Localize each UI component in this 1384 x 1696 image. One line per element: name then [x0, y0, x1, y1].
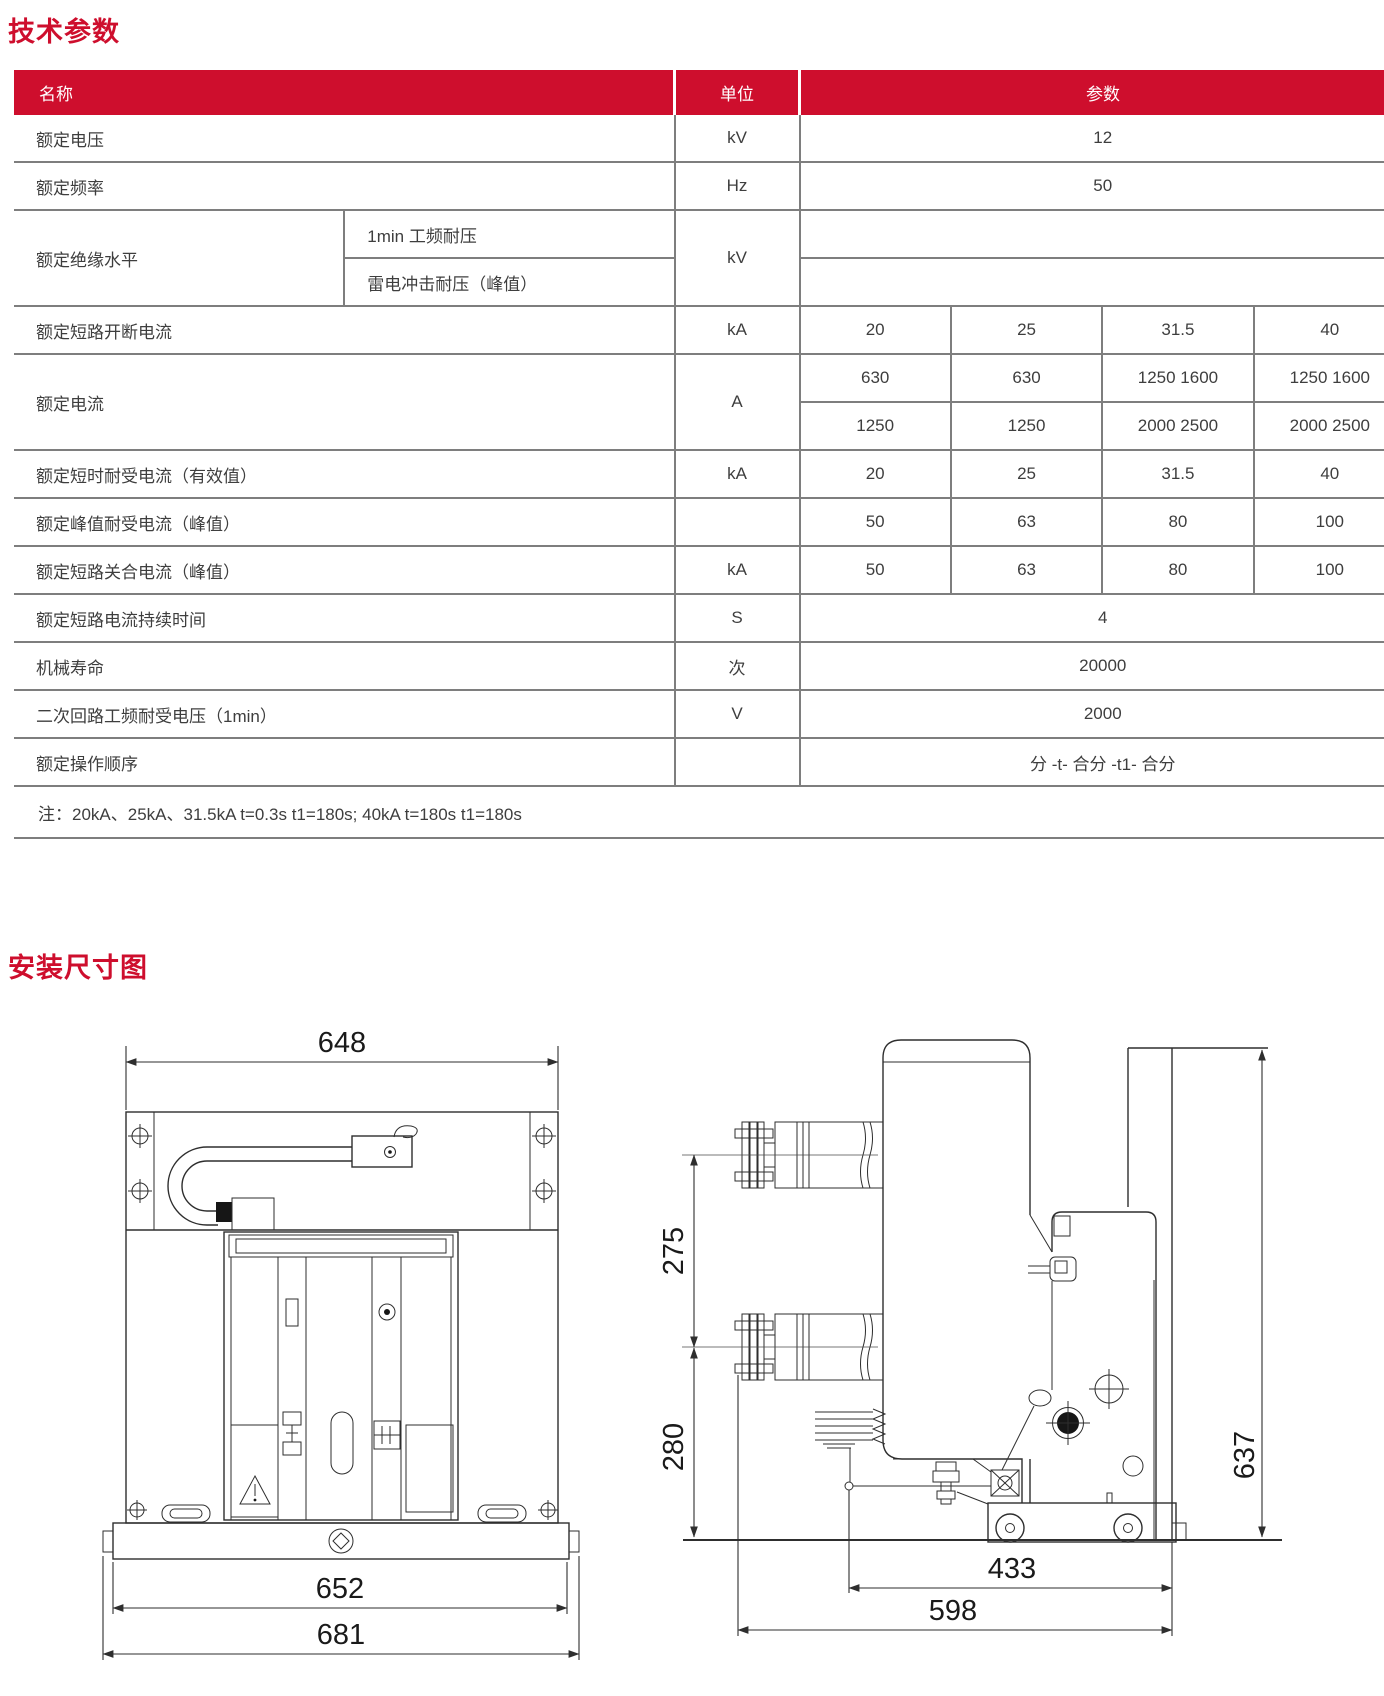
cell-value: 40 — [1254, 306, 1384, 354]
table-note: 注：20kA、25kA、31.5kA t=0.3s t1=180s; 40kA … — [14, 786, 1384, 838]
table-note-row: 注：20kA、25kA、31.5kA t=0.3s t1=180s; 40kA … — [14, 786, 1384, 838]
cell-name: 额定频率 — [14, 162, 675, 210]
cell-unit: kV — [675, 210, 800, 306]
cell-unit: V — [675, 690, 800, 738]
header-unit: 单位 — [675, 70, 800, 115]
shaft-end — [1046, 1401, 1090, 1445]
cell-name: 机械寿命 — [14, 642, 675, 690]
dim-total-height: 637 — [1229, 1050, 1262, 1537]
dim-base-width: 652 — [113, 1562, 567, 1614]
header-row: 名称 单位 参数 — [14, 70, 1384, 115]
tech-params-title: 技术参数 — [8, 10, 120, 49]
cell-value: 80 — [1102, 546, 1253, 594]
cell-value: 31.5 — [1102, 306, 1253, 354]
cell-value: 40 — [1254, 450, 1384, 498]
wheel — [996, 1514, 1024, 1542]
cell-name: 额定短路电流持续时间 — [14, 594, 675, 642]
cell-value: 20000 — [800, 642, 1384, 690]
table-row: 额定绝缘水平 1min 工频耐压 kV — [14, 210, 1384, 258]
table-row: 额定频率 Hz 50 — [14, 162, 1384, 210]
wheel — [1114, 1514, 1142, 1542]
cell-value: 1250 — [800, 402, 951, 450]
cell-name: 额定短路关合电流（峰值） — [14, 546, 675, 594]
table-header: 名称 单位 参数 — [14, 70, 1384, 115]
cell-name: 额定短时耐受电流（有效值） — [14, 450, 675, 498]
position-indicator — [283, 1412, 301, 1455]
dim-label-280: 280 — [658, 1423, 690, 1471]
cell-unit: Hz — [675, 162, 800, 210]
install-dims-title: 安装尺寸图 — [8, 946, 148, 985]
table-row: 额定电流 A 630 630 1250 1600 1250 1600 — [14, 354, 1384, 402]
table-row: 额定短路电流持续时间 S 4 — [14, 594, 1384, 642]
header-param: 参数 — [800, 70, 1384, 115]
cell-value: 1250 1600 — [1254, 354, 1384, 402]
cell-name: 额定电压 — [14, 115, 675, 162]
cell-value: 50 — [800, 546, 951, 594]
cell-name: 额定短路开断电流 — [14, 306, 675, 354]
pivot-hole-marker — [1089, 1369, 1129, 1409]
cell-unit: 次 — [675, 642, 800, 690]
cell-value: 63 — [951, 498, 1102, 546]
cell-value: 31.5 — [1102, 450, 1253, 498]
cell-subname: 雷电冲击耐压（峰值） — [344, 258, 674, 306]
cell-value — [800, 210, 1384, 258]
interlock-cable — [168, 1126, 417, 1230]
cell-unit — [675, 738, 800, 786]
cell-value: 2000 2500 — [1102, 402, 1253, 450]
breaker-front-body — [224, 1232, 458, 1520]
cell-unit: kA — [675, 546, 800, 594]
installation-drawings: 648 — [0, 1000, 1384, 1696]
cell-value: 20 — [800, 306, 951, 354]
trolley-base — [988, 1493, 1176, 1542]
cell-value: 100 — [1254, 546, 1384, 594]
cell-value: 100 — [1254, 498, 1384, 546]
dim-track: 433 — [849, 1490, 1172, 1636]
mechanism-bracket — [1002, 1212, 1156, 1540]
table-row: 额定短路开断电流 kA 20 25 31.5 40 — [14, 306, 1384, 354]
dim-label-637: 637 — [1229, 1431, 1261, 1479]
cell-value: 25 — [951, 306, 1102, 354]
pole-housing — [883, 1040, 1030, 1503]
dim-label-275: 275 — [658, 1227, 690, 1275]
lower-bushing — [682, 1314, 883, 1380]
cell-value: 50 — [800, 498, 951, 546]
warning-icon — [231, 1425, 278, 1517]
cell-value: 1250 1600 — [1102, 354, 1253, 402]
dim-label-598: 598 — [929, 1595, 977, 1627]
table-row: 额定短时耐受电流（有效值） kA 20 25 31.5 40 — [14, 450, 1384, 498]
cell-unit: S — [675, 594, 800, 642]
bellows — [815, 1409, 885, 1490]
header-name: 名称 — [14, 70, 675, 115]
table-row: 机械寿命 次 20000 — [14, 642, 1384, 690]
table-row: 额定电压 kV 12 — [14, 115, 1384, 162]
hole — [1123, 1456, 1143, 1476]
cell-unit: kV — [675, 115, 800, 162]
dim-pole-spacing: 275 — [658, 1155, 694, 1347]
cell-value: 2000 — [800, 690, 1384, 738]
cell-value: 12 — [800, 115, 1384, 162]
cell-unit: A — [675, 354, 800, 450]
table-row: 二次回路工频耐受电压（1min） V 2000 — [14, 690, 1384, 738]
nameplate — [406, 1425, 453, 1512]
dim-label-652: 652 — [316, 1573, 364, 1605]
dim-label-648: 648 — [318, 1027, 366, 1059]
cell-value: 2000 2500 — [1254, 402, 1384, 450]
cell-unit: kA — [675, 450, 800, 498]
front-view: 648 — [103, 1027, 579, 1660]
cell-value: 4 — [800, 594, 1384, 642]
cell-value: 1250 — [951, 402, 1102, 450]
dim-overall-depth: 598 — [738, 1375, 1172, 1636]
cell-value: 50 — [800, 162, 1384, 210]
operating-slot — [331, 1412, 353, 1474]
cell-name: 二次回路工频耐受电压（1min） — [14, 690, 675, 738]
cell-name: 额定电流 — [14, 354, 675, 450]
dim-label-433: 433 — [988, 1553, 1036, 1585]
cell-value: 分 -t- 合分 -t1- 合分 — [800, 738, 1384, 786]
side-view: 275 280 637 433 598 — [658, 1040, 1282, 1636]
dim-lower-section: 280 — [658, 1348, 694, 1537]
dim-top-width: 648 — [126, 1027, 558, 1110]
cell-value — [800, 258, 1384, 306]
tech-params-table: 名称 单位 参数 额定电压 kV 12 额定频率 Hz 50 额定绝缘水平 1m… — [14, 70, 1384, 839]
cell-value: 80 — [1102, 498, 1253, 546]
cell-unit: kA — [675, 306, 800, 354]
lower-linkage — [853, 1459, 1019, 1504]
upper-bushing — [682, 1122, 883, 1188]
cell-value: 630 — [800, 354, 951, 402]
cell-subname: 1min 工频耐压 — [344, 210, 674, 258]
cell-name: 额定峰值耐受电流（峰值） — [14, 498, 675, 546]
cell-value: 25 — [951, 450, 1102, 498]
cell-name: 额定绝缘水平 — [14, 210, 344, 306]
cell-name: 额定操作顺序 — [14, 738, 675, 786]
cell-unit — [675, 498, 800, 546]
base-beam — [103, 1523, 579, 1559]
cell-value: 630 — [951, 354, 1102, 402]
mounting-hole-markers — [128, 1124, 556, 1203]
table-row: 额定操作顺序 分 -t- 合分 -t1- 合分 — [14, 738, 1384, 786]
table-row: 额定峰值耐受电流（峰值） 50 63 80 100 — [14, 498, 1384, 546]
cell-value: 63 — [951, 546, 1102, 594]
energy-indicator — [374, 1421, 400, 1449]
dim-label-681: 681 — [317, 1619, 365, 1651]
table-row: 额定短路关合电流（峰值） kA 50 63 80 100 — [14, 546, 1384, 594]
base-hole-markers — [127, 1500, 558, 1520]
cell-value: 20 — [800, 450, 951, 498]
